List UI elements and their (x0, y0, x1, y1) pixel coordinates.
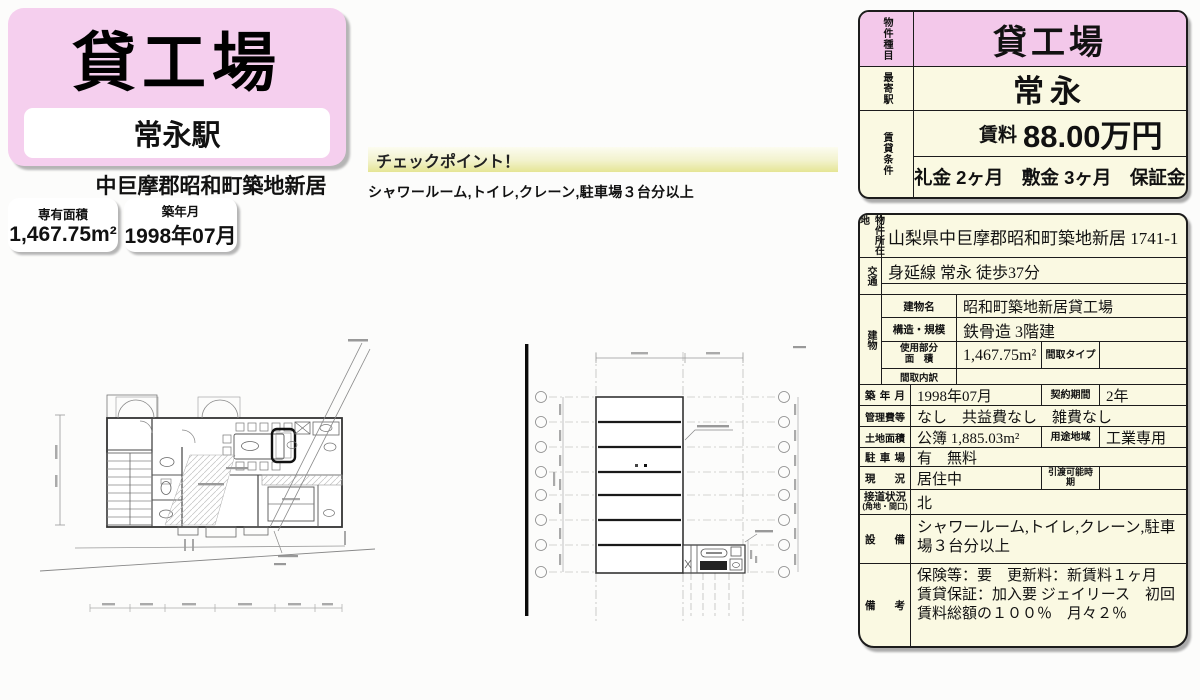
label-zoning: 用途地域 (1042, 427, 1100, 447)
property-title-card: 貸工場 常永駅 (8, 8, 346, 166)
property-address: 中巨摩郡昭和町築地新居 (75, 170, 347, 200)
value-property-type: 貸工場 (914, 12, 1186, 66)
checkpoint-section: チェックポイント！ シャワールーム,トイレ,クレーン,駐車場３台分以上 (368, 147, 838, 202)
summary-table: 物件種目 貸工場 最寄駅 常永 賃貸条件 賃料 88.00万円 礼金 2ヶ月 敷… (858, 10, 1188, 199)
label-layout-detail: 間取内訳 (882, 369, 957, 384)
station-name: 常永駅 (133, 112, 220, 154)
built-stat-box: 築年月 1998年07月 (124, 198, 237, 252)
row-building-name: 建物名 昭和町築地新居貸工場 (882, 295, 1186, 317)
value-building-name: 昭和町築地新居貸工場 (957, 295, 1186, 317)
value-nearest-station: 常永 (914, 67, 1186, 110)
label-nearest-station: 最寄駅 (860, 67, 914, 110)
value-built-year: 1998年07月 (911, 385, 1042, 405)
label-building-name: 建物名 (882, 295, 957, 317)
access-empty-line (882, 284, 1186, 294)
value-zoning: 工業専用 (1100, 427, 1186, 447)
label-equipment: 設 備 (860, 532, 910, 547)
value-equipment: シャワールーム,トイレ,クレーン,駐車場３台分以上 (911, 515, 1186, 563)
value-floor-area: 1,467.75m² (957, 342, 1042, 368)
row-management-fees: 管理費等 なし 共益費なし 雑費なし (860, 405, 1186, 426)
row-structure: 構造・規模 鉄骨造 3階建 (882, 317, 1186, 341)
floorplan-left (30, 335, 375, 630)
label-road: 接道状況 (角地・間口) (860, 490, 911, 514)
built-value: 1998年07月 (124, 220, 236, 250)
value-management-fees: なし 共益費なし 雑費なし (911, 406, 1186, 426)
area-stat-box: 専有面積 1,467.75m² (8, 198, 118, 252)
label-management-fees: 管理費等 (860, 406, 911, 426)
value-notes: 保険等：要 更新料：新賃料１ヶ月 賃貸保証：加入要 ジェイリース 初回賃料総額の… (911, 564, 1186, 646)
row-land-area: 土地面積 公簿 1,885.03m² 用途地域 工業専用 (860, 426, 1186, 447)
value-access: 身延線 常永 徒歩37分 (882, 258, 1186, 284)
station-name-box: 常永駅 (24, 108, 330, 158)
label-land-area: 土地面積 (860, 427, 911, 447)
value-layout-type (1100, 342, 1186, 368)
access-values: 身延線 常永 徒歩37分 (882, 258, 1186, 294)
row-parking: 駐車場 有 無料 (860, 447, 1186, 466)
row-layout-detail: 間取内訳 (882, 368, 1186, 384)
building-subtable: 建物名 昭和町築地新居貸工場 構造・規模 鉄骨造 3階建 使用部分 面 積 1,… (882, 295, 1186, 384)
label-road-sub: (角地・間口) (862, 503, 907, 512)
label-building: 建物 (860, 295, 882, 384)
row-equipment: 設 備 シャワールーム,トイレ,クレーン,駐車場３台分以上 (860, 514, 1186, 563)
value-handover (1100, 467, 1186, 489)
value-location: 山梨県中巨摩郡昭和町築地新居 1741-1 (882, 215, 1186, 257)
row-lease-terms: 賃貸条件 賃料 88.00万円 礼金 2ヶ月 敷金 3ヶ月 保証金 なし (860, 110, 1186, 197)
rent-value: 88.00万円 (1023, 111, 1163, 156)
label-notes: 備 考 (860, 598, 910, 613)
deposit-line: 礼金 2ヶ月 敷金 3ヶ月 保証金 なし (914, 157, 1188, 197)
row-property-type: 物件種目 貸工場 (860, 12, 1186, 66)
row-building: 建物 建物名 昭和町築地新居貸工場 構造・規模 鉄骨造 3階建 使用部分 面 積… (860, 294, 1186, 384)
label-parking: 駐車場 (860, 450, 910, 465)
checkpoint-text: シャワールーム,トイレ,クレーン,駐車場３台分以上 (368, 182, 838, 202)
value-status: 居住中 (911, 467, 1042, 489)
value-road: 北 (911, 490, 1186, 514)
lease-terms-values: 賃料 88.00万円 礼金 2ヶ月 敷金 3ヶ月 保証金 なし (914, 111, 1188, 197)
area-value: 1,467.75m² (9, 223, 116, 247)
detail-table: 物件所在地 山梨県中巨摩郡昭和町築地新居 1741-1 交通 身延線 常永 徒歩… (858, 213, 1188, 648)
value-land-area: 公簿 1,885.03m² (911, 427, 1042, 447)
label-structure: 構造・規模 (882, 318, 957, 341)
property-type-title: 貸工場 (8, 8, 346, 108)
label-status: 現 況 (860, 471, 910, 486)
row-nearest-station: 最寄駅 常永 (860, 66, 1186, 110)
floorplan-right (505, 332, 820, 632)
area-label: 専有面積 (38, 204, 88, 223)
label-contract-period: 契約期間 (1042, 385, 1100, 405)
value-structure: 鉄骨造 3階建 (957, 318, 1186, 341)
value-contract-period: 2年 (1100, 385, 1186, 405)
label-access: 交通 (860, 258, 882, 294)
checkpoint-title: チェックポイント！ (368, 147, 838, 173)
label-layout-type: 間取タイプ (1042, 342, 1100, 368)
row-notes: 備 考 保険等：要 更新料：新賃料１ヶ月 賃貸保証：加入要 ジェイリース 初回賃… (860, 563, 1186, 646)
rent-label: 賃料 (979, 120, 1017, 147)
value-parking: 有 無料 (911, 448, 1186, 466)
value-layout-detail (957, 369, 1186, 384)
label-floor-area: 使用部分 面 積 (882, 342, 957, 368)
row-road: 接道状況 (角地・間口) 北 (860, 489, 1186, 514)
row-floor-area: 使用部分 面 積 1,467.75m² 間取タイプ (882, 341, 1186, 368)
row-status: 現 況 居住中 引渡可能時期 (860, 466, 1186, 489)
label-lease-terms: 賃貸条件 (860, 111, 914, 197)
label-floor-area-line2: 面 積 (905, 355, 934, 366)
built-label: 築年月 (162, 201, 200, 220)
row-built-year: 築年月 1998年07月 契約期間 2年 (860, 384, 1186, 405)
label-built-year: 築年月 (860, 388, 910, 403)
row-access: 交通 身延線 常永 徒歩37分 (860, 257, 1186, 294)
rent-line: 賃料 88.00万円 (914, 111, 1188, 157)
row-location: 物件所在地 山梨県中巨摩郡昭和町築地新居 1741-1 (860, 215, 1186, 257)
label-property-type: 物件種目 (860, 12, 914, 66)
label-handover: 引渡可能時期 (1042, 467, 1100, 489)
label-location: 物件所在地 (860, 215, 882, 257)
